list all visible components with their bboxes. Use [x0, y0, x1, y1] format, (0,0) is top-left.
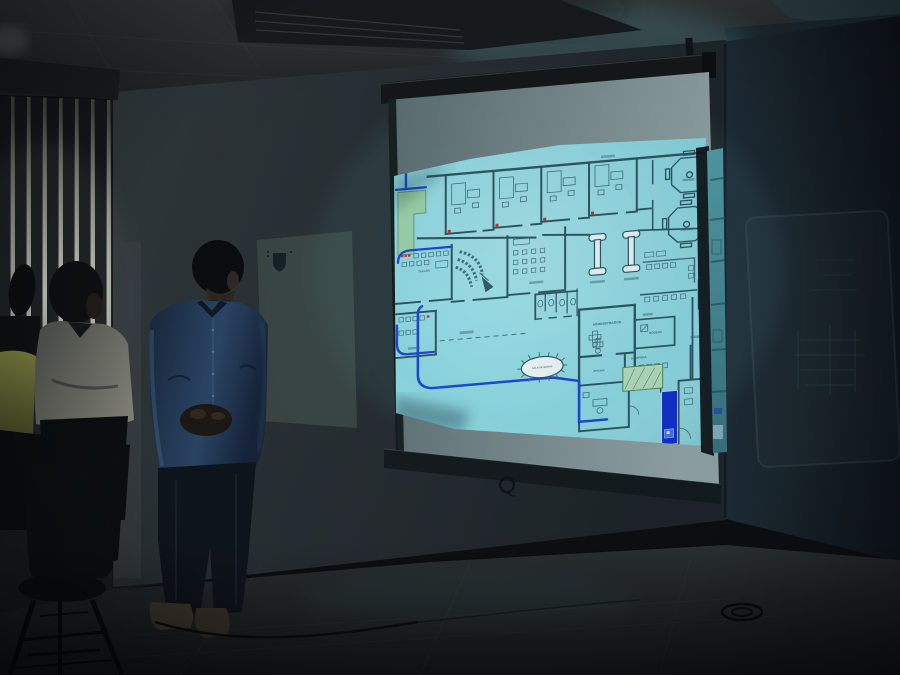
photo-vignette [0, 0, 900, 675]
photo-meeting-room: TALLER ADMINISTRADOR BODEGA S. ESPERA OF… [0, 0, 900, 675]
